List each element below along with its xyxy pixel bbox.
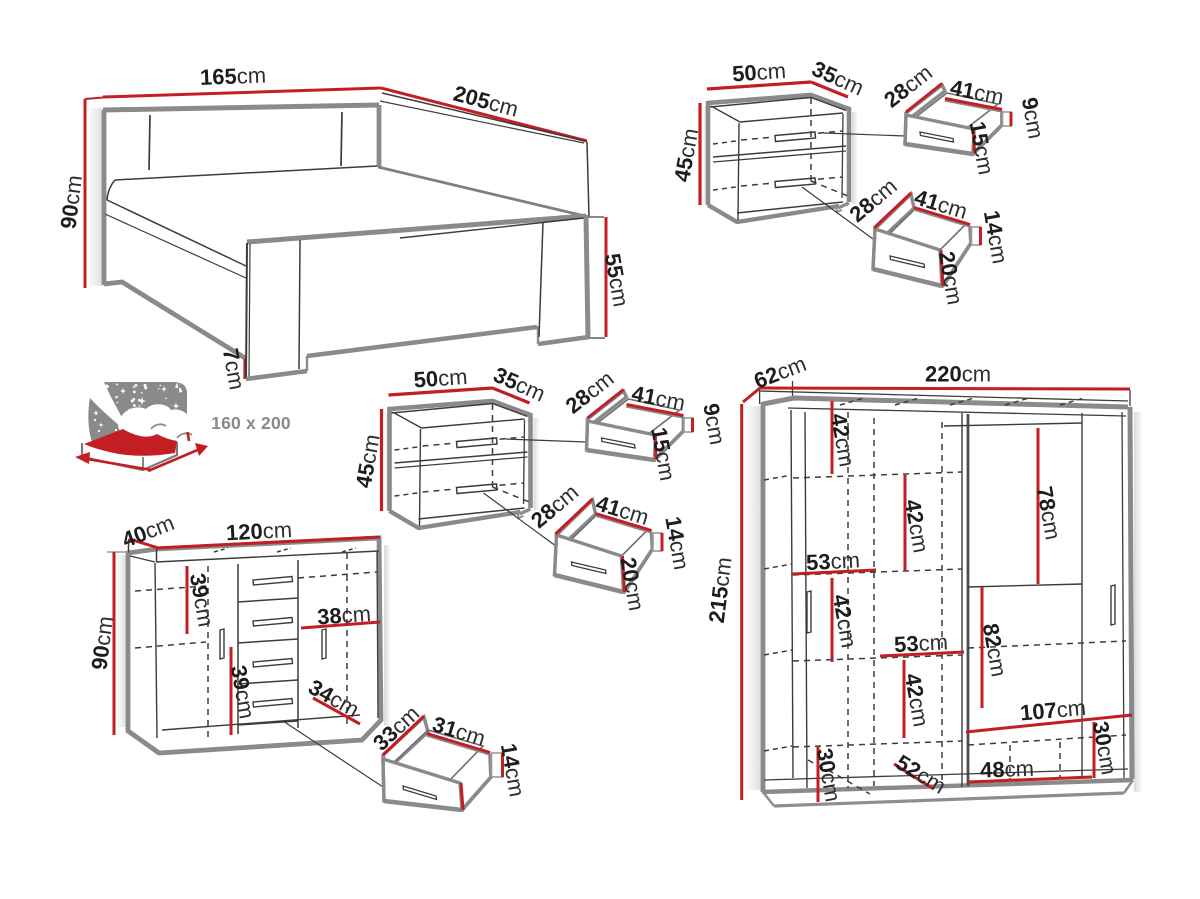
svg-text:53cm: 53cm: [805, 547, 860, 575]
svg-text:160 x 200: 160 x 200: [211, 413, 291, 433]
svg-text:220cm: 220cm: [925, 362, 991, 387]
svg-text:165cm: 165cm: [200, 63, 267, 90]
svg-text:120cm: 120cm: [225, 517, 292, 545]
svg-text:38cm: 38cm: [316, 601, 371, 630]
svg-text:48cm: 48cm: [980, 756, 1035, 783]
svg-text:50cm: 50cm: [731, 58, 786, 87]
svg-text:53cm: 53cm: [893, 629, 948, 657]
